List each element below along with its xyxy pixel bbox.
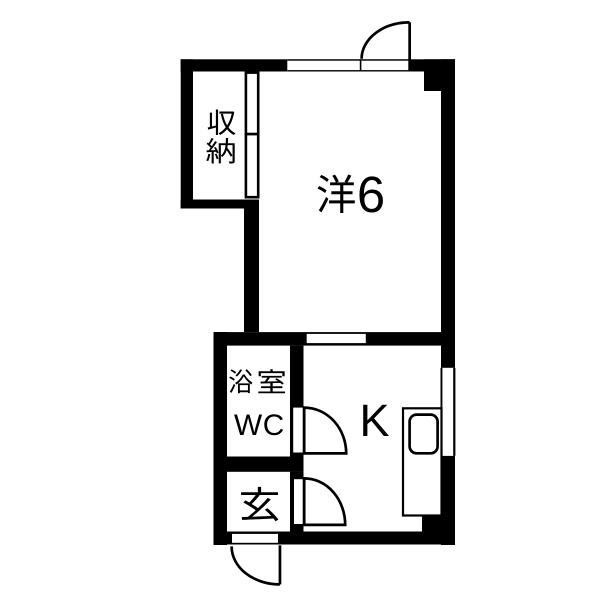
svg-text:WC: WC (234, 409, 285, 442)
svg-text:K: K (359, 395, 389, 446)
svg-text:6: 6 (357, 166, 385, 223)
